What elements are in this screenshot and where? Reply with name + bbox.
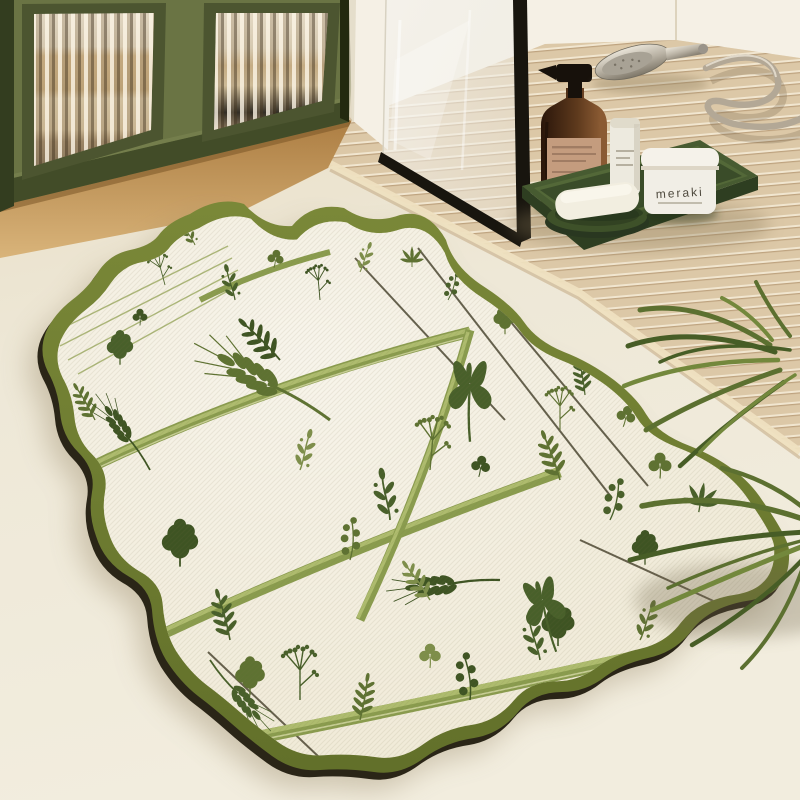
cabinet-side-strip — [0, 0, 14, 212]
scene-canvas: meraki — [0, 0, 800, 800]
cosmetic-jar[interactable]: meraki — [641, 148, 719, 223]
jar-brand-label: meraki — [655, 185, 704, 201]
bathroom-scene: meraki — [0, 0, 800, 800]
